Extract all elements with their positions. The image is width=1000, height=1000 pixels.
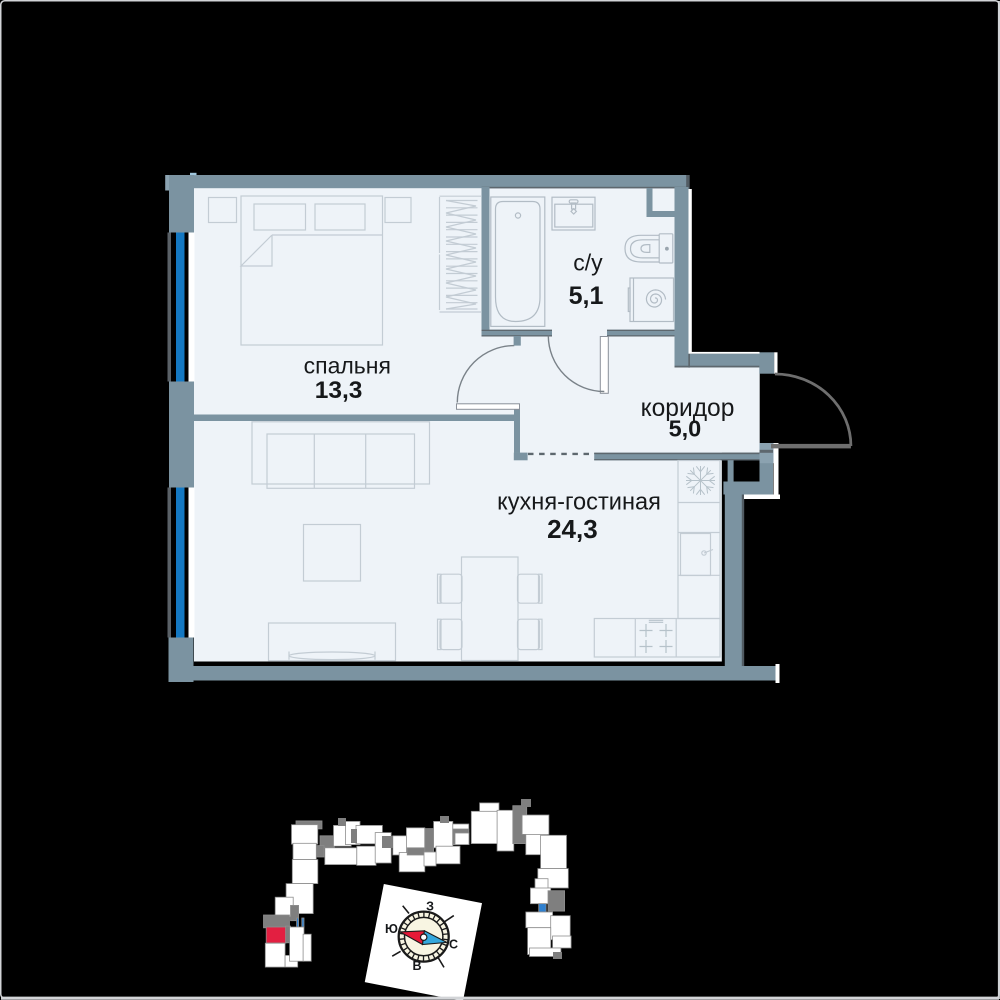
svg-text:спальня: спальня <box>304 352 391 378</box>
svg-text:Ю: Ю <box>385 922 398 936</box>
svg-text:кухня-гостиная: кухня-гостиная <box>497 490 661 516</box>
svg-text:5,1: 5,1 <box>569 282 604 310</box>
svg-text:13,3: 13,3 <box>315 377 363 404</box>
svg-text:С: С <box>449 938 458 952</box>
svg-text:24,3: 24,3 <box>547 514 598 544</box>
svg-text:З: З <box>426 900 434 914</box>
svg-text:В: В <box>412 959 421 973</box>
svg-text:с/у: с/у <box>573 250 603 276</box>
svg-text:5,0: 5,0 <box>669 416 702 442</box>
